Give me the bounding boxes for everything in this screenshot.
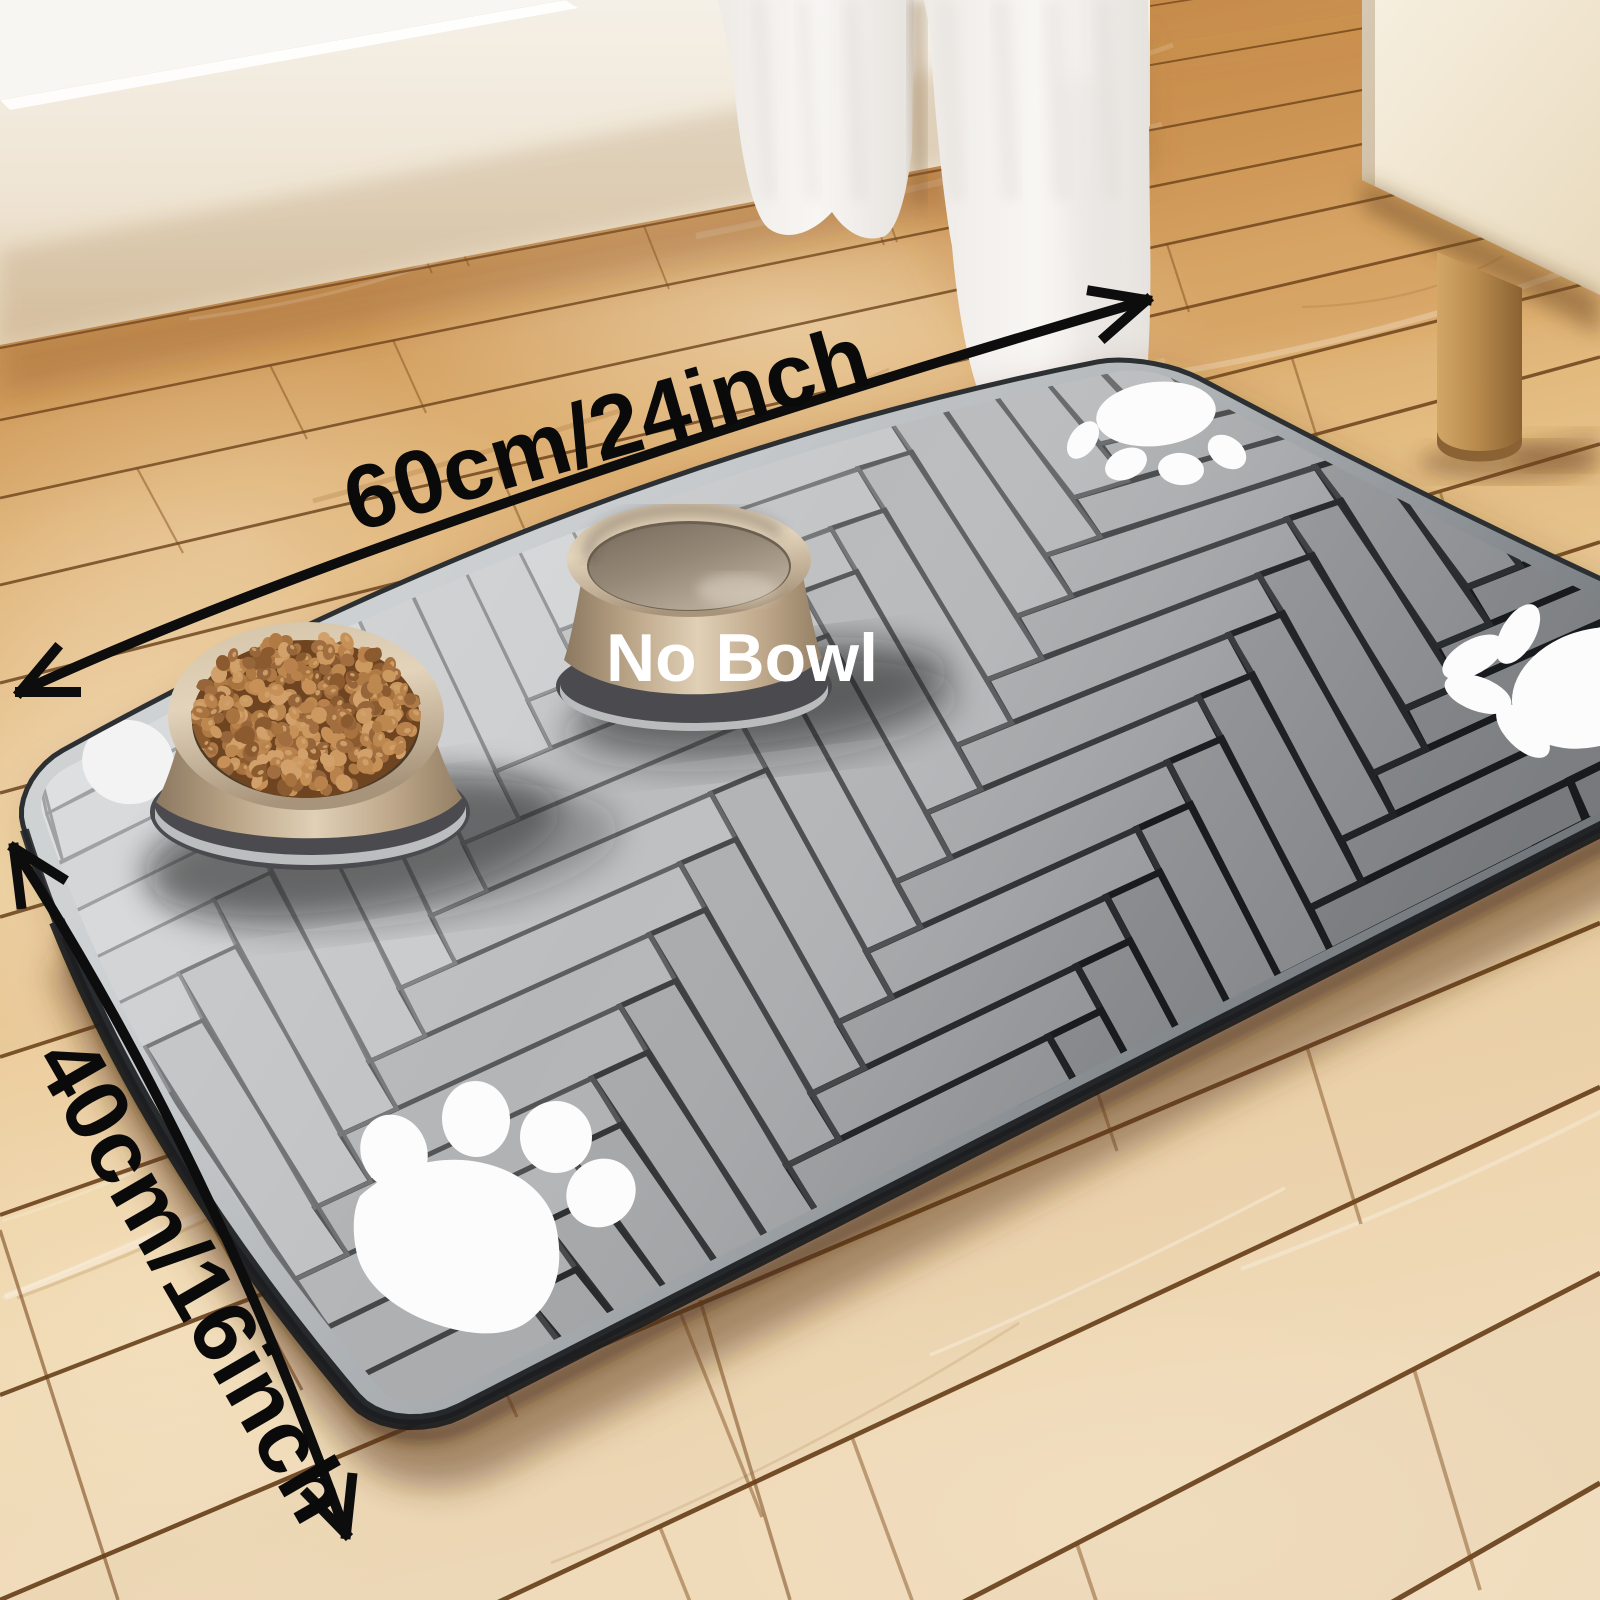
svg-text:No Bowl: No Bowl [606, 620, 878, 696]
